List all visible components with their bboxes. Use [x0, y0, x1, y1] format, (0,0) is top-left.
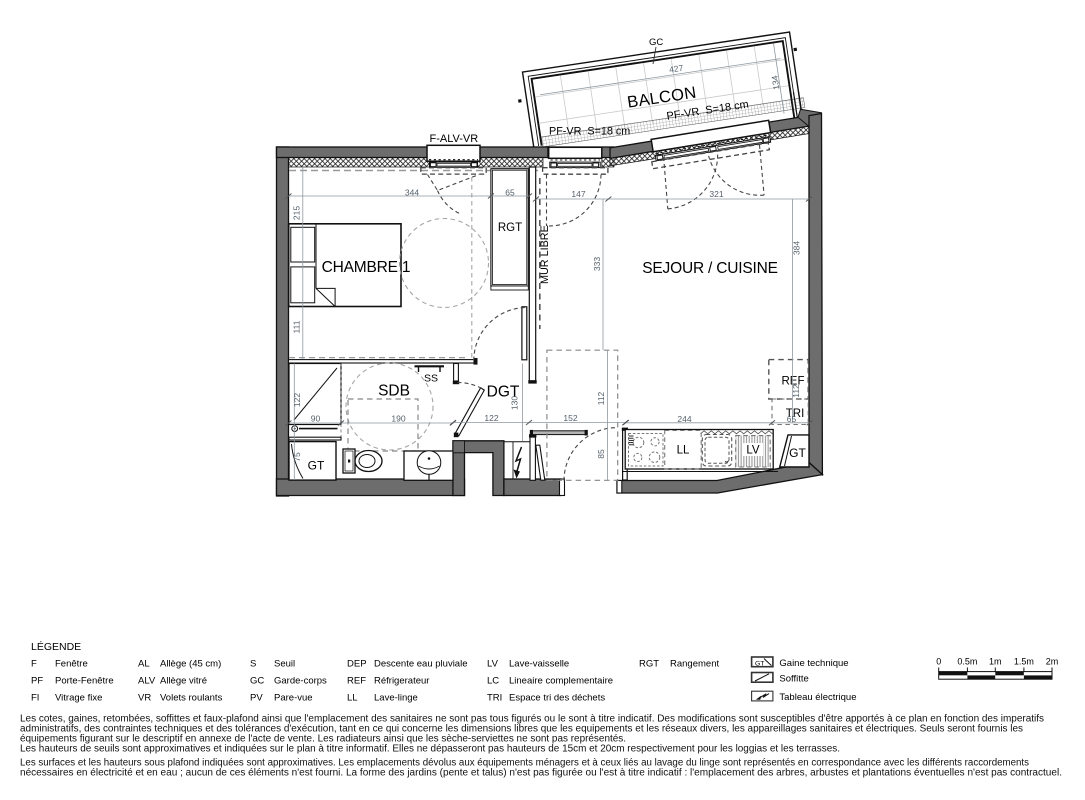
svg-text:384: 384	[792, 241, 802, 255]
svg-text:GC: GC	[649, 37, 663, 48]
svg-text:85: 85	[596, 449, 606, 459]
svg-text:112: 112	[596, 391, 606, 405]
svg-text:Allège vitré: Allège vitré	[160, 676, 207, 687]
svg-text:Espace tri des déchets: Espace tri des déchets	[509, 693, 605, 704]
svg-text:SDB: SDB	[378, 383, 410, 400]
svg-text:nécessaires en électricité et: nécessaires en électricité et en eau ; a…	[20, 768, 1062, 779]
svg-text:75: 75	[292, 452, 302, 462]
svg-text:344: 344	[405, 187, 419, 197]
svg-text:152: 152	[563, 413, 577, 423]
svg-text:Lave-vaisselle: Lave-vaisselle	[509, 659, 569, 670]
svg-text:244: 244	[677, 414, 691, 424]
svg-text:CHAMBRE 1: CHAMBRE 1	[322, 259, 411, 276]
svg-text:Pare-vue: Pare-vue	[274, 693, 313, 704]
svg-text:Allège (45 cm): Allège (45 cm)	[160, 659, 221, 670]
svg-text:RGT: RGT	[639, 659, 659, 670]
svg-text:RGT: RGT	[498, 222, 522, 234]
svg-text:122: 122	[484, 413, 498, 423]
svg-text:LÉGENDE: LÉGENDE	[31, 640, 81, 653]
svg-text:PV: PV	[250, 693, 263, 704]
svg-text:Fenêtre: Fenêtre	[55, 659, 88, 670]
svg-text:GT: GT	[308, 459, 325, 473]
svg-text:147: 147	[571, 189, 585, 199]
svg-text:1m: 1m	[989, 657, 1002, 667]
svg-text:MUR LIBRE: MUR LIBRE	[539, 225, 551, 284]
svg-text:Vitrage fixe: Vitrage fixe	[55, 693, 102, 704]
svg-text:2m: 2m	[1046, 657, 1059, 667]
svg-text:PF: PF	[31, 676, 43, 687]
svg-text:333: 333	[592, 257, 602, 271]
svg-text:TRI: TRI	[487, 693, 502, 704]
svg-text:65: 65	[787, 414, 797, 424]
svg-text:S: S	[250, 659, 256, 670]
svg-text:Porte-Fenêtre: Porte-Fenêtre	[55, 676, 114, 687]
svg-text:Lave-linge: Lave-linge	[374, 693, 418, 704]
svg-text:Soffitte: Soffitte	[779, 674, 808, 685]
svg-text:Volets roulants: Volets roulants	[160, 693, 223, 704]
svg-text:Rangement: Rangement	[670, 659, 719, 670]
svg-text:F: F	[31, 659, 37, 670]
svg-text:190: 190	[391, 413, 405, 423]
svg-text:0.5m: 0.5m	[957, 657, 977, 667]
svg-text:Tableau électrique: Tableau électrique	[779, 692, 856, 703]
svg-text:Lineaire complementaire: Lineaire complementaire	[509, 676, 613, 687]
svg-text:LV: LV	[487, 659, 499, 670]
svg-text:DEP: DEP	[347, 659, 367, 670]
svg-text:0: 0	[936, 657, 941, 667]
svg-text:LV: LV	[746, 445, 760, 457]
svg-text:Garde-corps: Garde-corps	[274, 676, 327, 687]
svg-text:LC: LC	[487, 676, 499, 687]
svg-text:427: 427	[668, 63, 684, 75]
svg-text:GT: GT	[755, 660, 764, 667]
svg-text:215: 215	[292, 206, 302, 220]
svg-text:321: 321	[709, 189, 723, 199]
svg-text:90: 90	[311, 413, 321, 423]
svg-text:ALV: ALV	[138, 676, 156, 687]
svg-text:AL: AL	[138, 659, 150, 670]
svg-text:65: 65	[505, 187, 515, 197]
svg-text:Gaine technique: Gaine technique	[779, 658, 848, 669]
svg-text:GT: GT	[789, 446, 806, 460]
svg-text:122: 122	[292, 393, 302, 407]
svg-text:SEJOUR / CUISINE: SEJOUR / CUISINE	[642, 260, 777, 277]
svg-text:LL: LL	[677, 445, 690, 457]
svg-text:Les hauteurs de seuils sont ap: Les hauteurs de seuils sont approximativ…	[20, 744, 840, 755]
svg-text:PF-VR S=18 cm: PF-VR S=18 cm	[549, 126, 630, 138]
svg-text:FI: FI	[31, 693, 39, 704]
svg-text:Seuil: Seuil	[274, 659, 295, 670]
svg-text:111: 111	[292, 320, 302, 333]
svg-text:130: 130	[510, 396, 520, 410]
svg-text:Réfrigerateur: Réfrigerateur	[374, 676, 429, 687]
svg-text:LL: LL	[347, 693, 358, 704]
svg-text:134: 134	[769, 75, 781, 91]
svg-text:Descente eau pluviale: Descente eau pluviale	[374, 659, 467, 670]
svg-text:1.5m: 1.5m	[1014, 657, 1034, 667]
svg-text:GC: GC	[250, 676, 264, 687]
svg-text:REF: REF	[347, 676, 366, 687]
svg-text:F-ALV-VR: F-ALV-VR	[430, 133, 479, 145]
svg-text:VR: VR	[138, 693, 151, 704]
svg-text:112: 112	[791, 384, 801, 398]
svg-text:SS: SS	[424, 373, 438, 385]
